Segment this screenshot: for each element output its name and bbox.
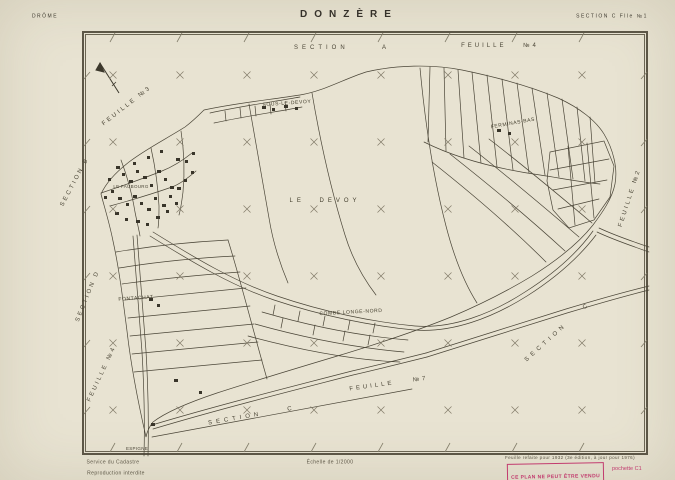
place-le-faubourg: LE FAUBOURG (113, 185, 148, 190)
margin-top-section: SECTION A (294, 45, 390, 51)
cadastral-map-sheet: DRÔME DONZÈRE SECTION C Flle №1 (0, 0, 675, 480)
sale-prohibition-stamp: CE PLAN NE PEUT ÊTRE VENDU (507, 462, 604, 480)
footer-scale: Échelle de 1/2000 (307, 461, 354, 466)
place-espigne: ESPIGNE (126, 447, 148, 452)
footer-revision-note: Feuille refaite pour 1932 (3e édition, à… (505, 456, 635, 461)
stamp-text: CE PLAN NE PEUT ÊTRE VENDU (511, 473, 600, 480)
footer-reproduction: Reproduction interdite (87, 472, 145, 477)
map-linework (0, 0, 675, 480)
margin-top-feuille: FEUILLE №4 (461, 43, 539, 49)
pochette-reference: pochette C1 (612, 466, 642, 472)
footer-service: Service du Cadastre (87, 461, 140, 466)
place-le-devoy: LE DEVOY (289, 198, 360, 204)
